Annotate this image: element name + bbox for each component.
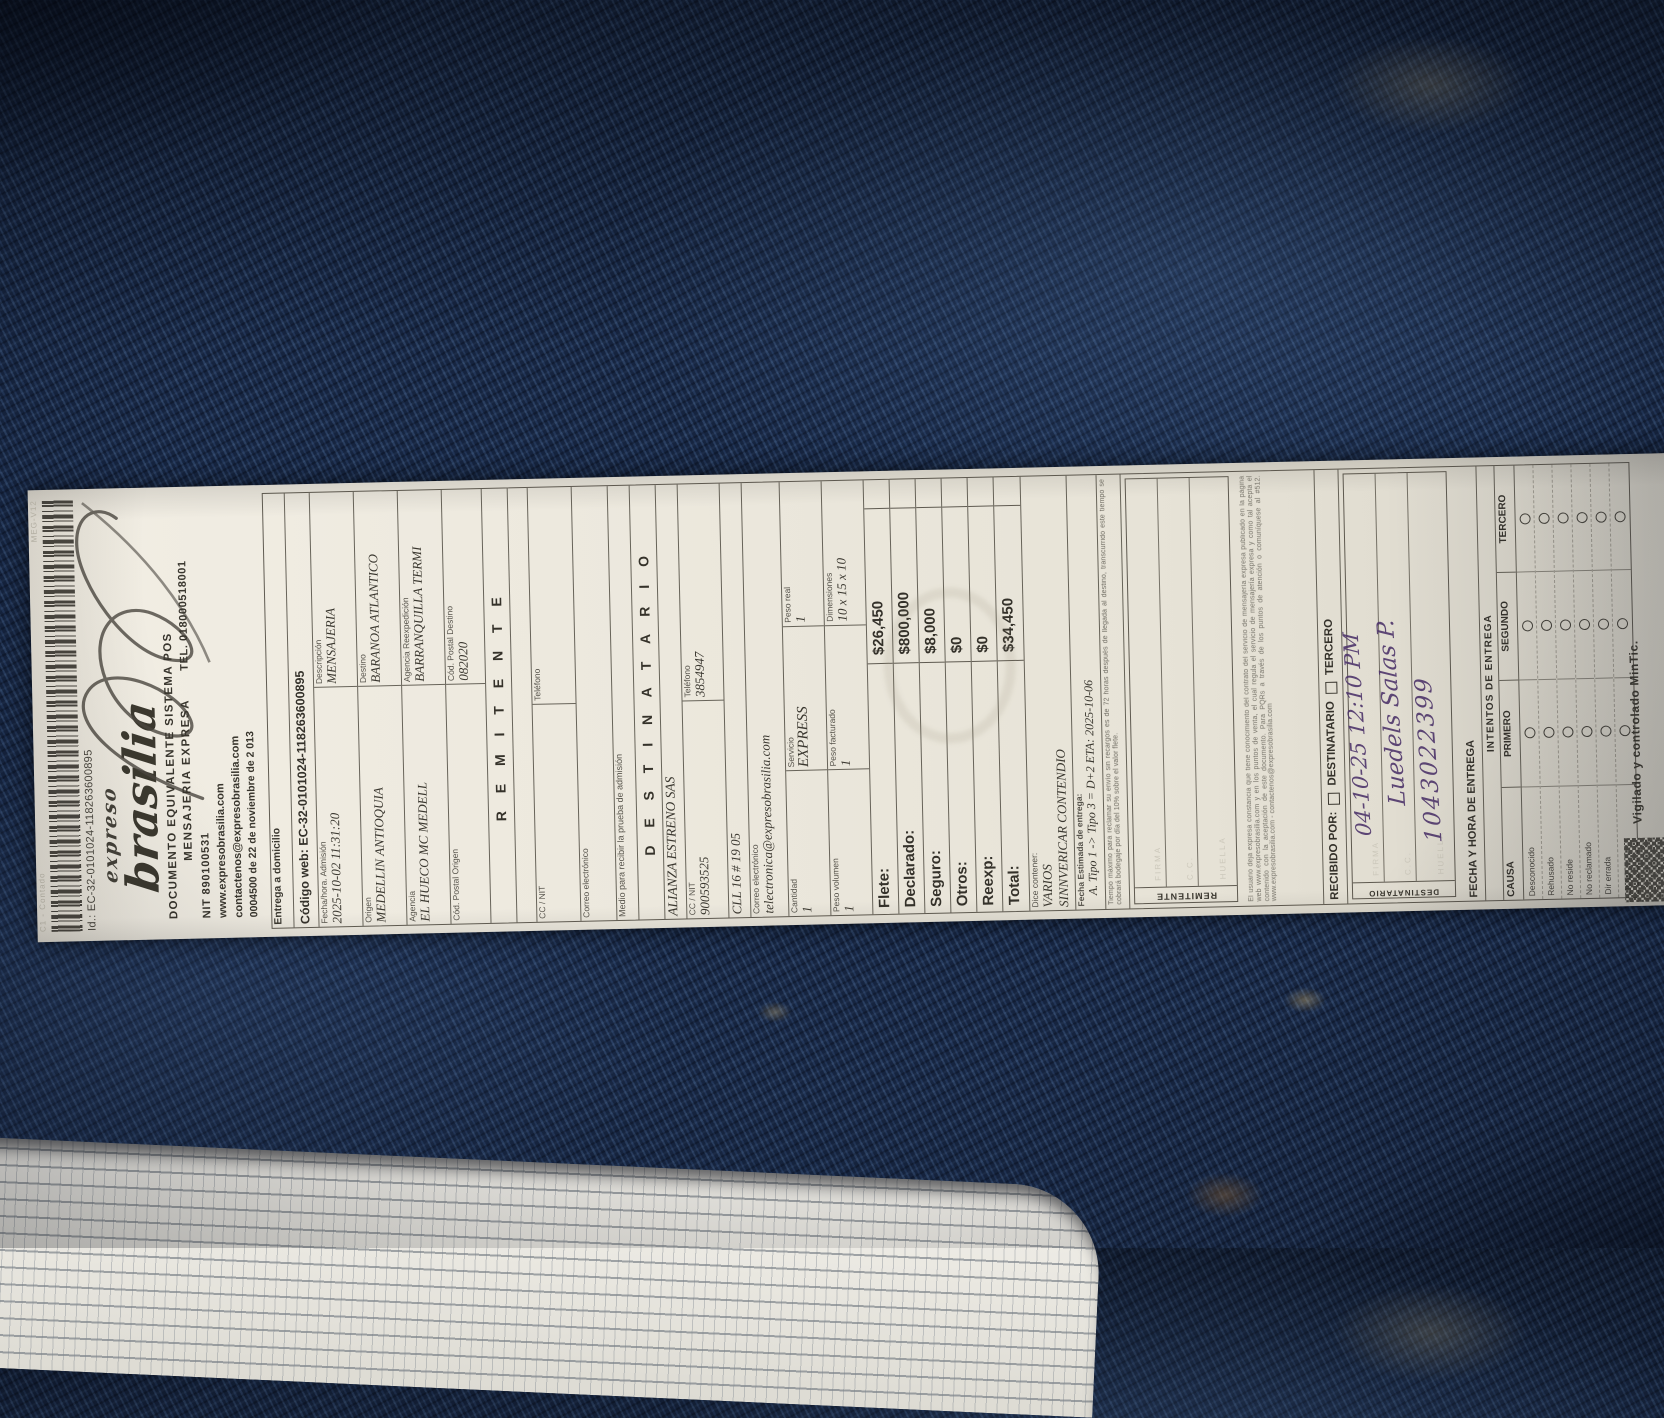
qr-code bbox=[1624, 837, 1664, 902]
edge-note-left: C1 - Contado bbox=[38, 872, 48, 932]
attempt-circle bbox=[1557, 512, 1568, 523]
causa-header: CAUSA bbox=[1502, 788, 1524, 900]
attempt-circle bbox=[1562, 727, 1573, 738]
attempt-circle bbox=[1597, 619, 1608, 630]
attempt-circle bbox=[1595, 511, 1606, 522]
attempt-circle bbox=[1578, 619, 1589, 630]
attempt-col-tercero: TERCERO bbox=[1494, 466, 1515, 574]
attempt-circle bbox=[1559, 619, 1570, 630]
sender-signature-section: REMITENTE FIRMA C.C. HUELLA bbox=[1125, 472, 1247, 908]
pen-signature-scribble bbox=[54, 494, 227, 814]
mintic-footer: Vigilado y controlado MinTic. bbox=[1627, 640, 1645, 824]
attempt-circle bbox=[1581, 726, 1592, 737]
attempt-circle bbox=[1543, 727, 1554, 738]
checkbox-destinatario bbox=[1327, 792, 1339, 804]
sender-signature-side-label: REMITENTE bbox=[1135, 885, 1237, 903]
attempt-circle bbox=[1538, 512, 1549, 523]
edge-note-right: MEG-V12 bbox=[30, 500, 40, 542]
received-by-option-destinatario: DESTINATARIO bbox=[1325, 701, 1340, 786]
attempt-col-primero: PRIMERO bbox=[1499, 680, 1520, 788]
attempt-circle bbox=[1614, 511, 1625, 522]
nit-line: NIT 890100531 bbox=[199, 832, 213, 918]
attempt-circle bbox=[1519, 513, 1530, 524]
website-line: www.expresobrasilia.com bbox=[214, 783, 229, 918]
attempt-circle bbox=[1617, 618, 1628, 629]
recipient-signature-side-label: DESTINATARIO bbox=[1353, 880, 1455, 898]
attempt-circle bbox=[1540, 620, 1551, 631]
contact-email-line: contactenos@expresobrasilia.com bbox=[229, 736, 245, 918]
authorization-line: 0004500 de 22 de noviembre de 2 013 bbox=[245, 731, 261, 917]
received-by-label: RECIBIDO POR: bbox=[1327, 811, 1342, 899]
recipient-signature-section: DESTINATARIO FIRMA C.C. HUELLA 04-10-25 … bbox=[1342, 467, 1464, 903]
attempt-col-segundo: SEGUNDO bbox=[1497, 573, 1518, 681]
attempt-circle bbox=[1524, 728, 1535, 739]
received-by-option-tercero: TERCERO bbox=[1323, 619, 1337, 676]
shipping-receipt: C1 - Contado MEG-V12 Id.: EC-32-0101024-… bbox=[28, 453, 1664, 942]
attempt-circle bbox=[1600, 726, 1611, 737]
grid-paper-sheet bbox=[0, 1136, 1103, 1417]
legal-paragraph-row: El usuario deja expresa constancia que t… bbox=[1236, 470, 1324, 906]
attempt-circle bbox=[1521, 620, 1532, 631]
phone-line: TEL. 018000518001 bbox=[176, 560, 191, 671]
checkbox-tercero bbox=[1325, 682, 1337, 694]
attempt-circle bbox=[1576, 512, 1587, 523]
